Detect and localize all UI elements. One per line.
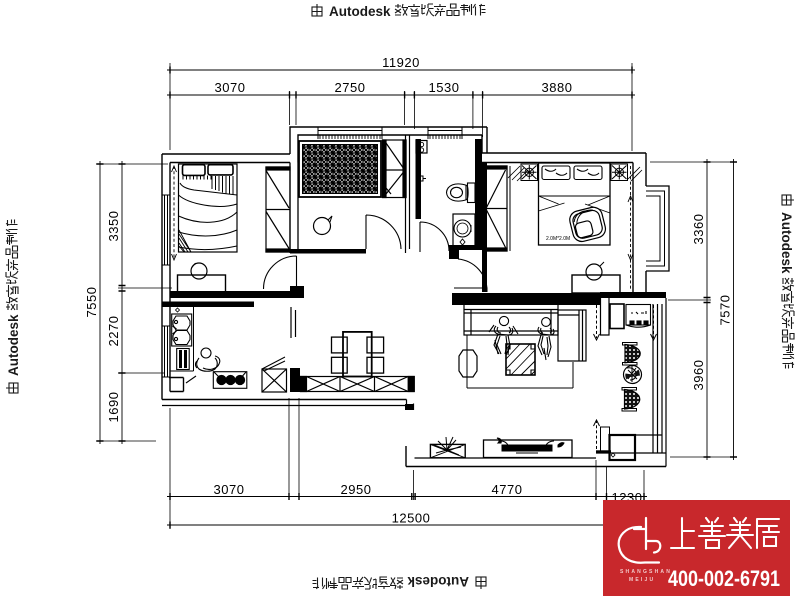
svg-text:3070: 3070 (214, 482, 245, 497)
svg-text:7570: 7570 (718, 295, 733, 326)
svg-text:4770: 4770 (492, 482, 523, 497)
svg-text:400-002-6791: 400-002-6791 (668, 566, 780, 591)
svg-text:3960: 3960 (691, 360, 706, 391)
svg-text:3360: 3360 (691, 214, 706, 245)
svg-text:2270: 2270 (106, 316, 121, 347)
svg-text:1530: 1530 (429, 80, 460, 95)
svg-text:2.0M*2.0M: 2.0M*2.0M (546, 236, 570, 242)
svg-text:3880: 3880 (542, 80, 573, 95)
svg-text:2950: 2950 (341, 482, 372, 497)
svg-text:MEIJU: MEIJU (629, 577, 655, 583)
svg-text:11920: 11920 (382, 55, 420, 70)
svg-text:2750: 2750 (335, 80, 366, 95)
svg-text:SHANGSHAN: SHANGSHAN (620, 569, 672, 575)
svg-text:7550: 7550 (84, 287, 99, 318)
svg-text:3350: 3350 (106, 211, 121, 242)
svg-text:3070: 3070 (215, 80, 246, 95)
svg-text:1690: 1690 (106, 392, 121, 423)
svg-text:12500: 12500 (392, 511, 431, 526)
